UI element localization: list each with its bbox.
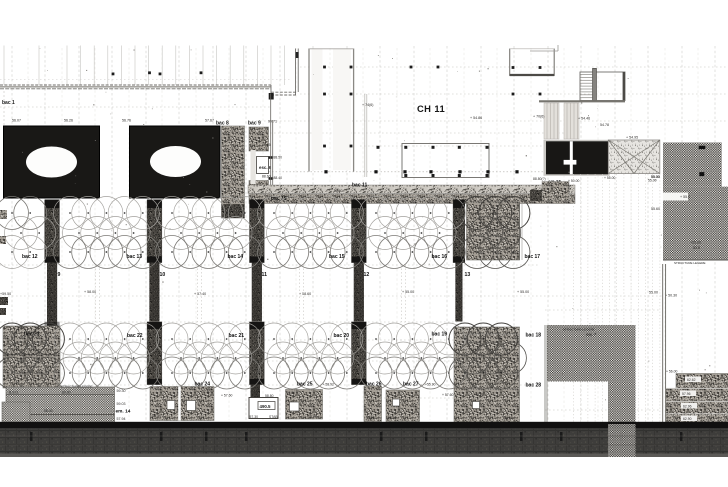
svg-text:88.40: 88.40 — [274, 176, 283, 180]
svg-text:+ 55.00: + 55.00 — [517, 290, 529, 294]
svg-text:12: 12 — [364, 272, 370, 278]
svg-text:490.5: 490.5 — [260, 404, 272, 409]
svg-text:em. 14: em. 14 — [116, 409, 131, 415]
svg-text:bac 12: bac 12 — [22, 254, 38, 260]
svg-text:57.67: 57.67 — [205, 119, 214, 123]
svg-text:43.00: 43.00 — [366, 416, 375, 420]
svg-text:57.94: 57.94 — [117, 417, 126, 421]
svg-text:STRUCTURE LEGERE: STRUCTURE LEGERE — [563, 328, 595, 332]
svg-text:88.60: 88.60 — [262, 175, 271, 179]
svg-text:bac 11: bac 11 — [352, 183, 368, 189]
svg-text:60.00: 60.00 — [62, 391, 71, 395]
svg-text:bac 10: bac 10 — [271, 196, 287, 202]
svg-text:STRUCTURE LEGERE: STRUCTURE LEGERE — [61, 385, 93, 389]
svg-text:+ 70(6): + 70(6) — [533, 115, 545, 119]
svg-text:bac 14: bac 14 — [228, 254, 244, 260]
svg-text:55.00: 55.00 — [648, 179, 657, 183]
svg-text:+55.00: +55.00 — [498, 381, 509, 385]
svg-text:+ 57.40: + 57.40 — [194, 292, 206, 296]
svg-text:esc. 7: esc. 7 — [586, 333, 596, 337]
svg-text:bac 15: bac 15 — [329, 254, 345, 260]
svg-text:+ 74(6): + 74(6) — [362, 103, 374, 107]
svg-text:+59.50: +59.50 — [0, 292, 11, 296]
svg-text:56.07: 56.07 — [12, 119, 21, 123]
svg-text:bac 9: bac 9 — [248, 121, 261, 127]
svg-text:57.96: 57.96 — [682, 392, 691, 396]
svg-text:+ 56.00: + 56.00 — [666, 370, 678, 374]
svg-text:bac 27: bac 27 — [403, 382, 419, 388]
svg-text:55.0: 55.0 — [693, 246, 700, 250]
svg-text:CH 11: CH 11 — [417, 103, 445, 114]
svg-text:88.50: 88.50 — [274, 156, 283, 160]
svg-text:+55.90: +55.90 — [425, 383, 436, 387]
svg-text:88.60: 88.60 — [334, 189, 343, 193]
svg-text:+ 58.92: + 58.92 — [323, 383, 335, 387]
svg-text:+ 58.00: + 58.00 — [84, 290, 96, 294]
svg-text:+ 58.60: + 58.60 — [299, 292, 311, 296]
svg-text:+ 57.60: + 57.60 — [221, 394, 233, 398]
svg-text:+ 54.95: + 54.95 — [626, 136, 638, 140]
svg-text:57.30: 57.30 — [250, 415, 259, 419]
svg-text:+ 55.0: + 55.0 — [680, 195, 690, 199]
svg-text:13: 13 — [465, 272, 471, 278]
svg-text:bac 28: bac 28 — [526, 383, 542, 389]
svg-text:+ 54.86: + 54.86 — [470, 116, 482, 120]
svg-text:+ 50.30: + 50.30 — [665, 294, 677, 298]
svg-text:55.00: 55.00 — [651, 175, 660, 179]
svg-text:bac 20: bac 20 — [334, 333, 350, 339]
svg-text:+55.60: +55.60 — [690, 241, 701, 245]
svg-text:bac 25: bac 25 — [297, 382, 313, 388]
svg-text:9: 9 — [58, 272, 61, 278]
svg-text:58.40: 58.40 — [153, 414, 162, 418]
svg-text:bac 16: bac 16 — [432, 254, 448, 260]
svg-text:55.00: 55.00 — [649, 291, 658, 295]
svg-text:bac 22: bac 22 — [127, 333, 143, 339]
svg-text:58.80: 58.80 — [265, 394, 274, 398]
svg-text:STRUCTURE LEGERE: STRUCTURE LEGERE — [674, 261, 706, 265]
svg-text:bac 19: bac 19 — [432, 332, 448, 338]
svg-text:97.80: 97.80 — [287, 391, 296, 395]
svg-text:88.80(?): 88.80(?) — [533, 177, 546, 181]
svg-text:62.96: 62.96 — [683, 405, 692, 409]
svg-text:11: 11 — [262, 272, 268, 278]
svg-text:58.00: 58.00 — [44, 409, 53, 413]
svg-text:bac 18: bac 18 — [526, 333, 542, 339]
svg-text:59.03: 59.03 — [117, 402, 126, 406]
svg-text:bac 13: bac 13 — [127, 254, 143, 260]
svg-text:56.26: 56.26 — [64, 119, 73, 123]
svg-text:+ 57.60: + 57.60 — [442, 393, 454, 397]
svg-text:55.60: 55.60 — [651, 207, 660, 211]
svg-text:59.40: 59.40 — [308, 415, 317, 419]
svg-text:+ 54.46: + 54.46 — [578, 117, 590, 121]
svg-text:esc. 6: esc. 6 — [259, 165, 272, 170]
svg-text:+ 55.00: + 55.00 — [402, 290, 414, 294]
svg-text:10: 10 — [160, 272, 166, 278]
svg-text:+47.00: +47.00 — [503, 417, 514, 421]
svg-text:62.90: 62.90 — [683, 417, 692, 421]
svg-text:62.62: 62.62 — [687, 378, 696, 382]
svg-text:54.78: 54.78 — [600, 123, 609, 127]
svg-text:57.65: 57.65 — [262, 143, 271, 147]
svg-text:bac 1: bac 1 — [2, 100, 15, 106]
svg-text:STAB: STAB — [269, 415, 278, 419]
svg-text:B.S.O.: B.S.O. — [9, 391, 19, 395]
svg-text:bac 17: bac 17 — [525, 254, 541, 260]
svg-text:58.45: 58.45 — [388, 416, 397, 420]
svg-text:bac 21: bac 21 — [229, 333, 245, 339]
svg-text:59.30: 59.30 — [117, 389, 126, 393]
svg-text:56.76: 56.76 — [122, 119, 131, 123]
svg-text:bac 23: bac 23 — [24, 332, 40, 338]
svg-text:57.60: 57.60 — [202, 390, 211, 394]
svg-text:44.20: 44.20 — [475, 393, 484, 397]
